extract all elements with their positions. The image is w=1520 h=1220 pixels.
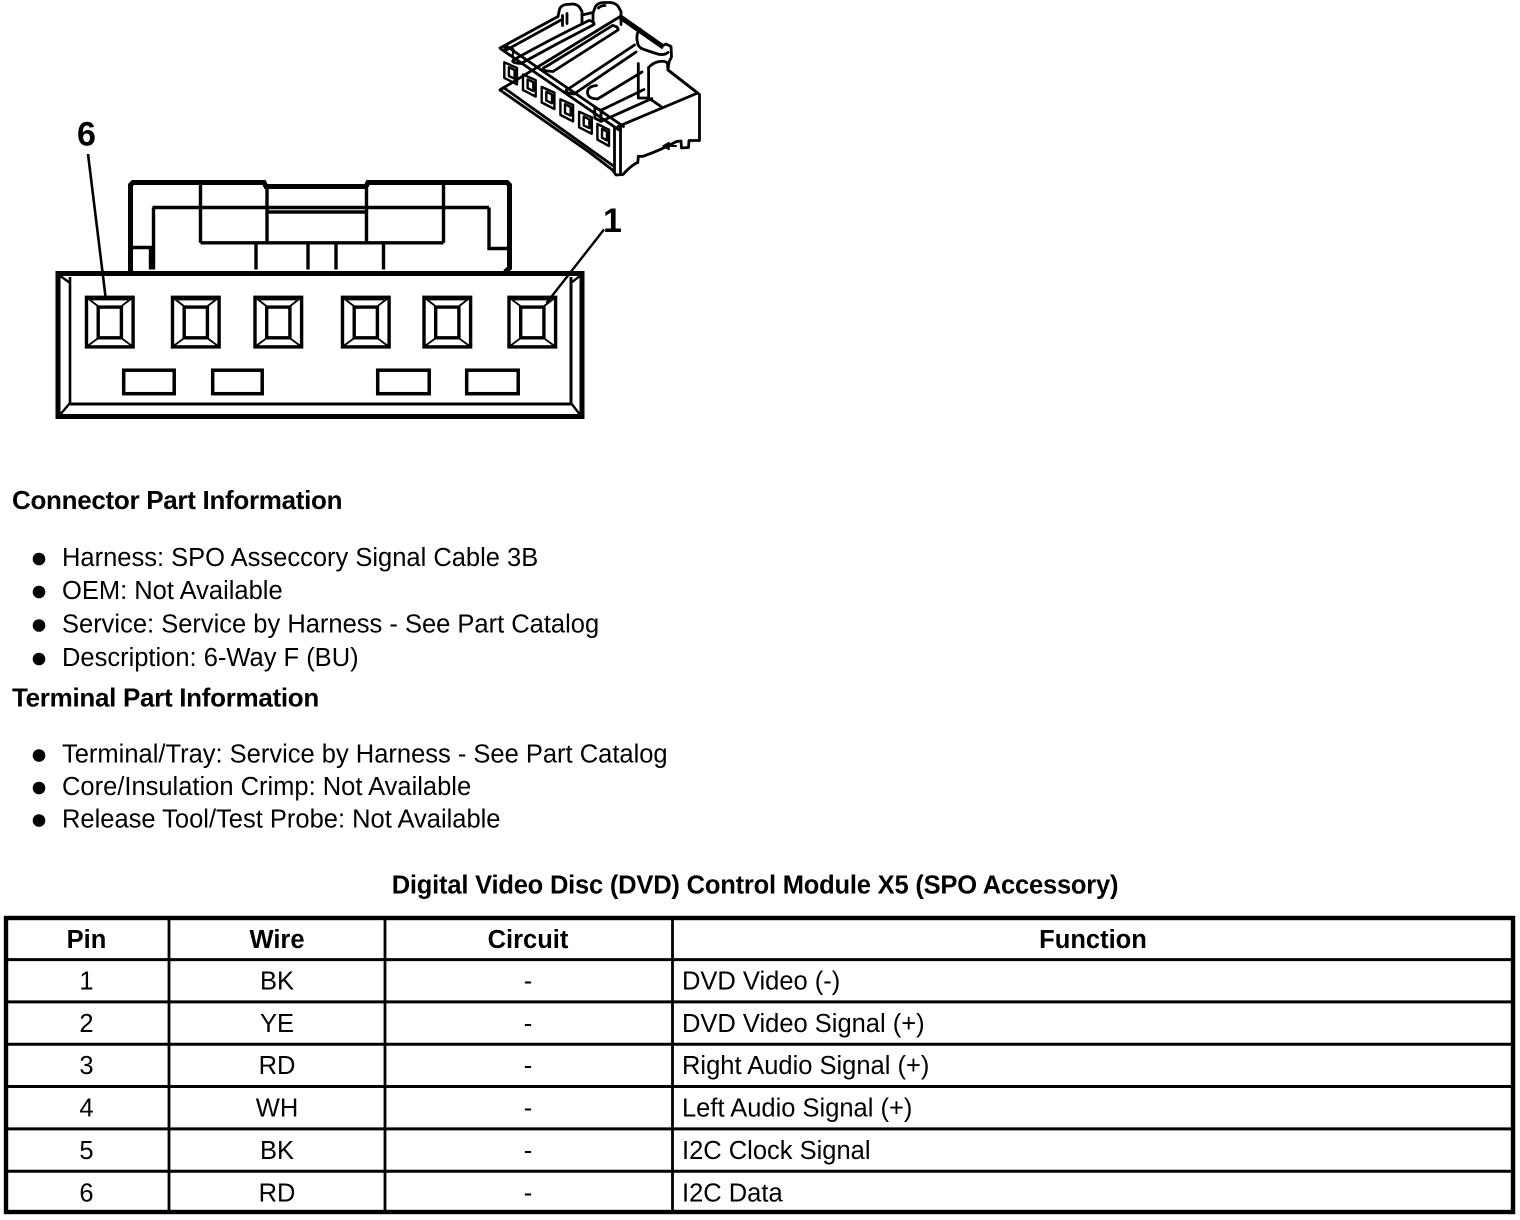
svg-text:6: 6 (77, 115, 96, 153)
svg-text:3: 3 (79, 1052, 93, 1080)
svg-text:RD: RD (259, 1052, 296, 1080)
svg-text:Core/Insulation Crimp: Not Ava: Core/Insulation Crimp: Not Available (62, 773, 471, 801)
svg-text:-: - (524, 968, 533, 996)
svg-text:DVD Video (-): DVD Video (-) (682, 968, 840, 996)
svg-text:6: 6 (79, 1179, 93, 1207)
svg-text:1: 1 (79, 968, 93, 996)
svg-text:5: 5 (79, 1137, 93, 1165)
svg-text:I2C Data: I2C Data (682, 1179, 783, 1207)
svg-text:I2C Clock Signal: I2C Clock Signal (682, 1137, 871, 1165)
svg-text:Harness: SPO Asseccory Signal: Harness: SPO Asseccory Signal Cable 3B (62, 544, 538, 572)
svg-text:-: - (524, 1095, 533, 1123)
svg-text:-: - (524, 1010, 533, 1038)
svg-text:Release Tool/Test Probe: Not A: Release Tool/Test Probe: Not Available (62, 806, 501, 834)
svg-text:Right Audio Signal (+): Right Audio Signal (+) (682, 1052, 929, 1080)
svg-text:1: 1 (603, 202, 622, 240)
svg-text:2: 2 (79, 1010, 93, 1038)
svg-text:-: - (524, 1137, 533, 1165)
svg-text:Function: Function (1039, 926, 1147, 954)
svg-text:Digital Video Disc (DVD) Contr: Digital Video Disc (DVD) Control Module … (392, 872, 1119, 900)
svg-text:WH: WH (256, 1095, 298, 1123)
svg-text:YE: YE (260, 1010, 294, 1038)
svg-text:Connector Part Information: Connector Part Information (12, 485, 342, 515)
svg-text:OEM: Not Available: OEM: Not Available (62, 577, 283, 605)
svg-text:Circuit: Circuit (488, 926, 569, 954)
svg-text:-: - (524, 1179, 533, 1207)
svg-text:4: 4 (79, 1095, 93, 1123)
svg-text:Terminal Part Information: Terminal Part Information (12, 683, 319, 713)
svg-text:-: - (524, 1052, 533, 1080)
svg-text:DVD Video Signal (+): DVD Video Signal (+) (682, 1010, 925, 1038)
svg-text:BK: BK (260, 1137, 294, 1165)
svg-text:Left Audio Signal (+): Left Audio Signal (+) (682, 1095, 912, 1123)
svg-text:BK: BK (260, 968, 294, 996)
svg-text:Pin: Pin (67, 926, 107, 954)
svg-text:Wire: Wire (249, 926, 304, 954)
svg-text:Description: 6-Way F (BU): Description: 6-Way F (BU) (62, 644, 359, 672)
svg-text:Service: Service by Harness -: Service: Service by Harness - See Part C… (62, 611, 599, 639)
svg-text:RD: RD (259, 1179, 296, 1207)
svg-text:Terminal/Tray: Service by Harn: Terminal/Tray: Service by Harness - See … (62, 741, 668, 769)
